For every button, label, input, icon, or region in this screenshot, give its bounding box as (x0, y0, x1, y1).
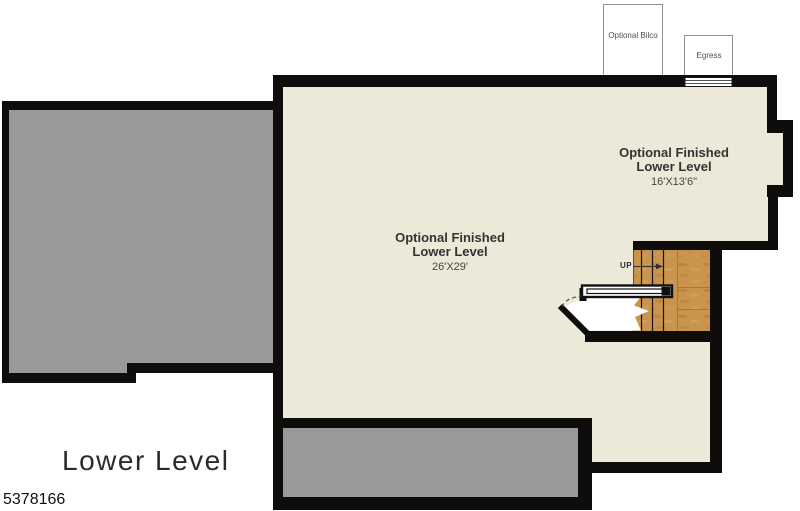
wall-stair-bottom (585, 331, 722, 342)
room-label-upper-right-line2: Lower Level (619, 160, 729, 174)
wall-stair-top (633, 241, 778, 250)
wall-grayleft-top (2, 101, 283, 110)
wall-lower-right-bottom (582, 462, 722, 473)
floor-plan-page: Optional Bilco Egress Optional Finished … (0, 0, 800, 511)
room-label-main-line2: Lower Level (395, 245, 505, 259)
egress-label: Egress (683, 51, 735, 60)
stair-handrail (582, 286, 672, 298)
wall-grayleft-bottom-right (127, 363, 283, 373)
room-label-upper-right-line1: Optional Finished (619, 146, 729, 160)
stairs-up-label: UP (620, 261, 632, 270)
wall-stair-right (710, 250, 722, 473)
egress-window (685, 78, 732, 87)
bilco-box (604, 5, 663, 77)
wall-main-left (273, 75, 283, 510)
wall-main-bottom (273, 418, 590, 428)
wall-right-mid (768, 185, 778, 250)
unfinished-area-left (6, 104, 278, 378)
exterior-feature-boxes (604, 5, 733, 77)
room-label-main-line1: Optional Finished (395, 231, 505, 245)
plan-title: Lower Level (62, 445, 229, 477)
wall-grayleft-bottom-left (2, 373, 136, 383)
wall-grayleft-left (2, 101, 9, 383)
wall-graybox-bottom (273, 497, 592, 510)
room-label-upper-right: Optional Finished Lower Level 16'X13'6" (619, 146, 729, 189)
room-label-main: Optional Finished Lower Level 26'X29' (395, 231, 505, 274)
unfinished-area-bottom (280, 426, 580, 502)
bilco-label: Optional Bilco (607, 31, 659, 40)
wall-graybox-right (578, 418, 592, 510)
listing-number: 5378166 (3, 491, 65, 509)
room-upper-right-dimensions: 16'X13'6" (619, 175, 729, 189)
room-main-dimensions: 26'X29' (395, 260, 505, 274)
